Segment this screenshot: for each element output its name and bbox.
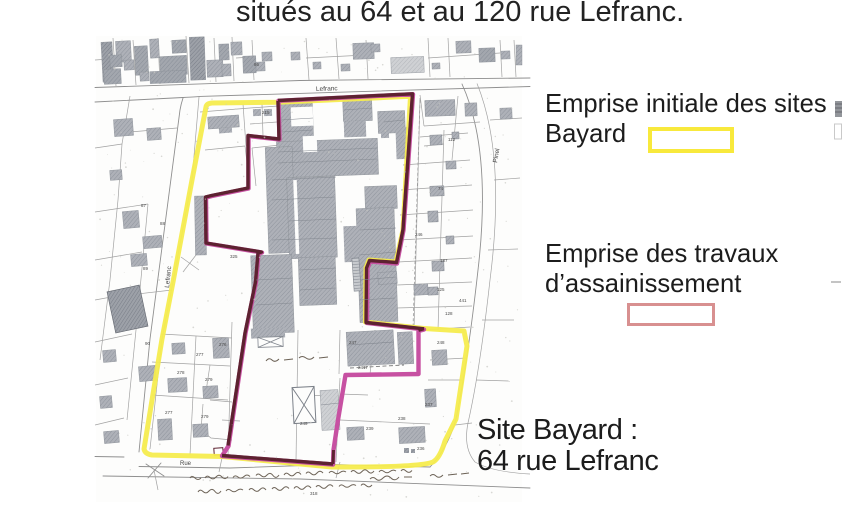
svg-text:215: 215	[262, 110, 270, 115]
svg-text:276: 276	[219, 342, 227, 347]
svg-text:125: 125	[437, 287, 445, 292]
svg-text:249: 249	[300, 421, 308, 426]
svg-text:239: 239	[366, 426, 374, 431]
svg-text:236: 236	[417, 446, 425, 451]
svg-text:278: 278	[177, 370, 185, 375]
svg-text:325: 325	[230, 254, 238, 259]
svg-text:2417: 2417	[358, 365, 369, 370]
svg-text:128: 128	[445, 311, 453, 316]
svg-text:89: 89	[143, 266, 149, 271]
svg-text:74: 74	[438, 186, 444, 191]
svg-text:90: 90	[145, 341, 151, 346]
svg-text:279: 279	[201, 414, 209, 419]
svg-text:238: 238	[398, 416, 406, 421]
svg-text:247: 247	[349, 340, 357, 345]
svg-text:318: 318	[310, 491, 318, 496]
svg-text:248: 248	[437, 340, 445, 345]
svg-text:277: 277	[196, 352, 204, 357]
svg-text:246: 246	[415, 232, 423, 237]
svg-text:112: 112	[448, 137, 456, 142]
svg-text:441: 441	[459, 298, 467, 303]
svg-text:237: 237	[425, 402, 433, 407]
svg-text:Rue: Rue	[180, 461, 192, 467]
svg-text:187: 187	[440, 258, 448, 263]
svg-text:277: 277	[165, 410, 173, 415]
svg-text:Lefranc: Lefranc	[316, 85, 339, 93]
svg-text:88: 88	[160, 221, 166, 226]
svg-text:279: 279	[205, 377, 213, 382]
svg-text:87: 87	[141, 203, 147, 208]
svg-text:86: 86	[254, 62, 260, 67]
